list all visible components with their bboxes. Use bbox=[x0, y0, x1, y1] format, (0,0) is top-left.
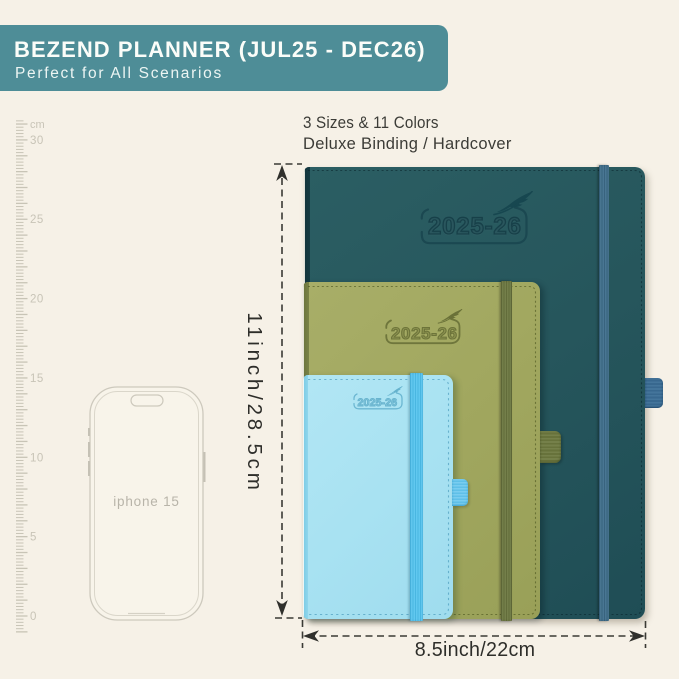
svg-text:iphone 15: iphone 15 bbox=[113, 494, 180, 509]
svg-text:10: 10 bbox=[30, 452, 44, 464]
svg-text:5: 5 bbox=[30, 532, 37, 544]
svg-text:30: 30 bbox=[30, 135, 44, 147]
svg-text:25: 25 bbox=[30, 214, 44, 226]
svg-text:20: 20 bbox=[30, 294, 44, 306]
svg-text:0: 0 bbox=[30, 611, 37, 623]
svg-text:15: 15 bbox=[30, 373, 44, 385]
svg-text:cm: cm bbox=[30, 119, 45, 131]
